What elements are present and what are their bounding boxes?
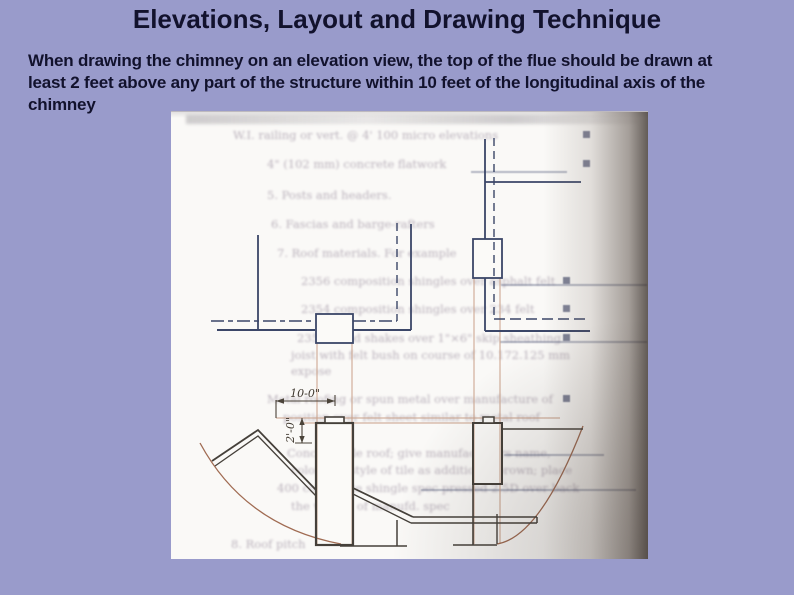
chimney-right-cap (483, 417, 494, 423)
radius-arcs (200, 426, 583, 544)
dimension-label-2ft: 2'-0" (284, 417, 297, 444)
roof-right-slope (353, 488, 413, 517)
body-line-2: least 2 feet above any part of the struc… (28, 72, 780, 94)
body-paragraph: When drawing the chimney on an elevation… (28, 50, 780, 116)
figure-photo: W.I. railing or vert. @ 4' 100 micro ele… (171, 111, 648, 559)
dimension-label-10ft: 10-0" (290, 387, 320, 400)
chimney-elevation-drawing: 10-0" 2'-0" (171, 112, 648, 559)
presentation-slide: Elevations, Layout and Drawing Technique… (0, 0, 794, 595)
body-line-1: When drawing the chimney on an elevation… (28, 50, 780, 72)
page-title: Elevations, Layout and Drawing Technique (0, 4, 794, 35)
upper-elevation (211, 138, 590, 343)
roof-left-slope (212, 430, 316, 490)
chimney-left-cap (325, 417, 344, 423)
right-radius-arc (497, 426, 583, 544)
